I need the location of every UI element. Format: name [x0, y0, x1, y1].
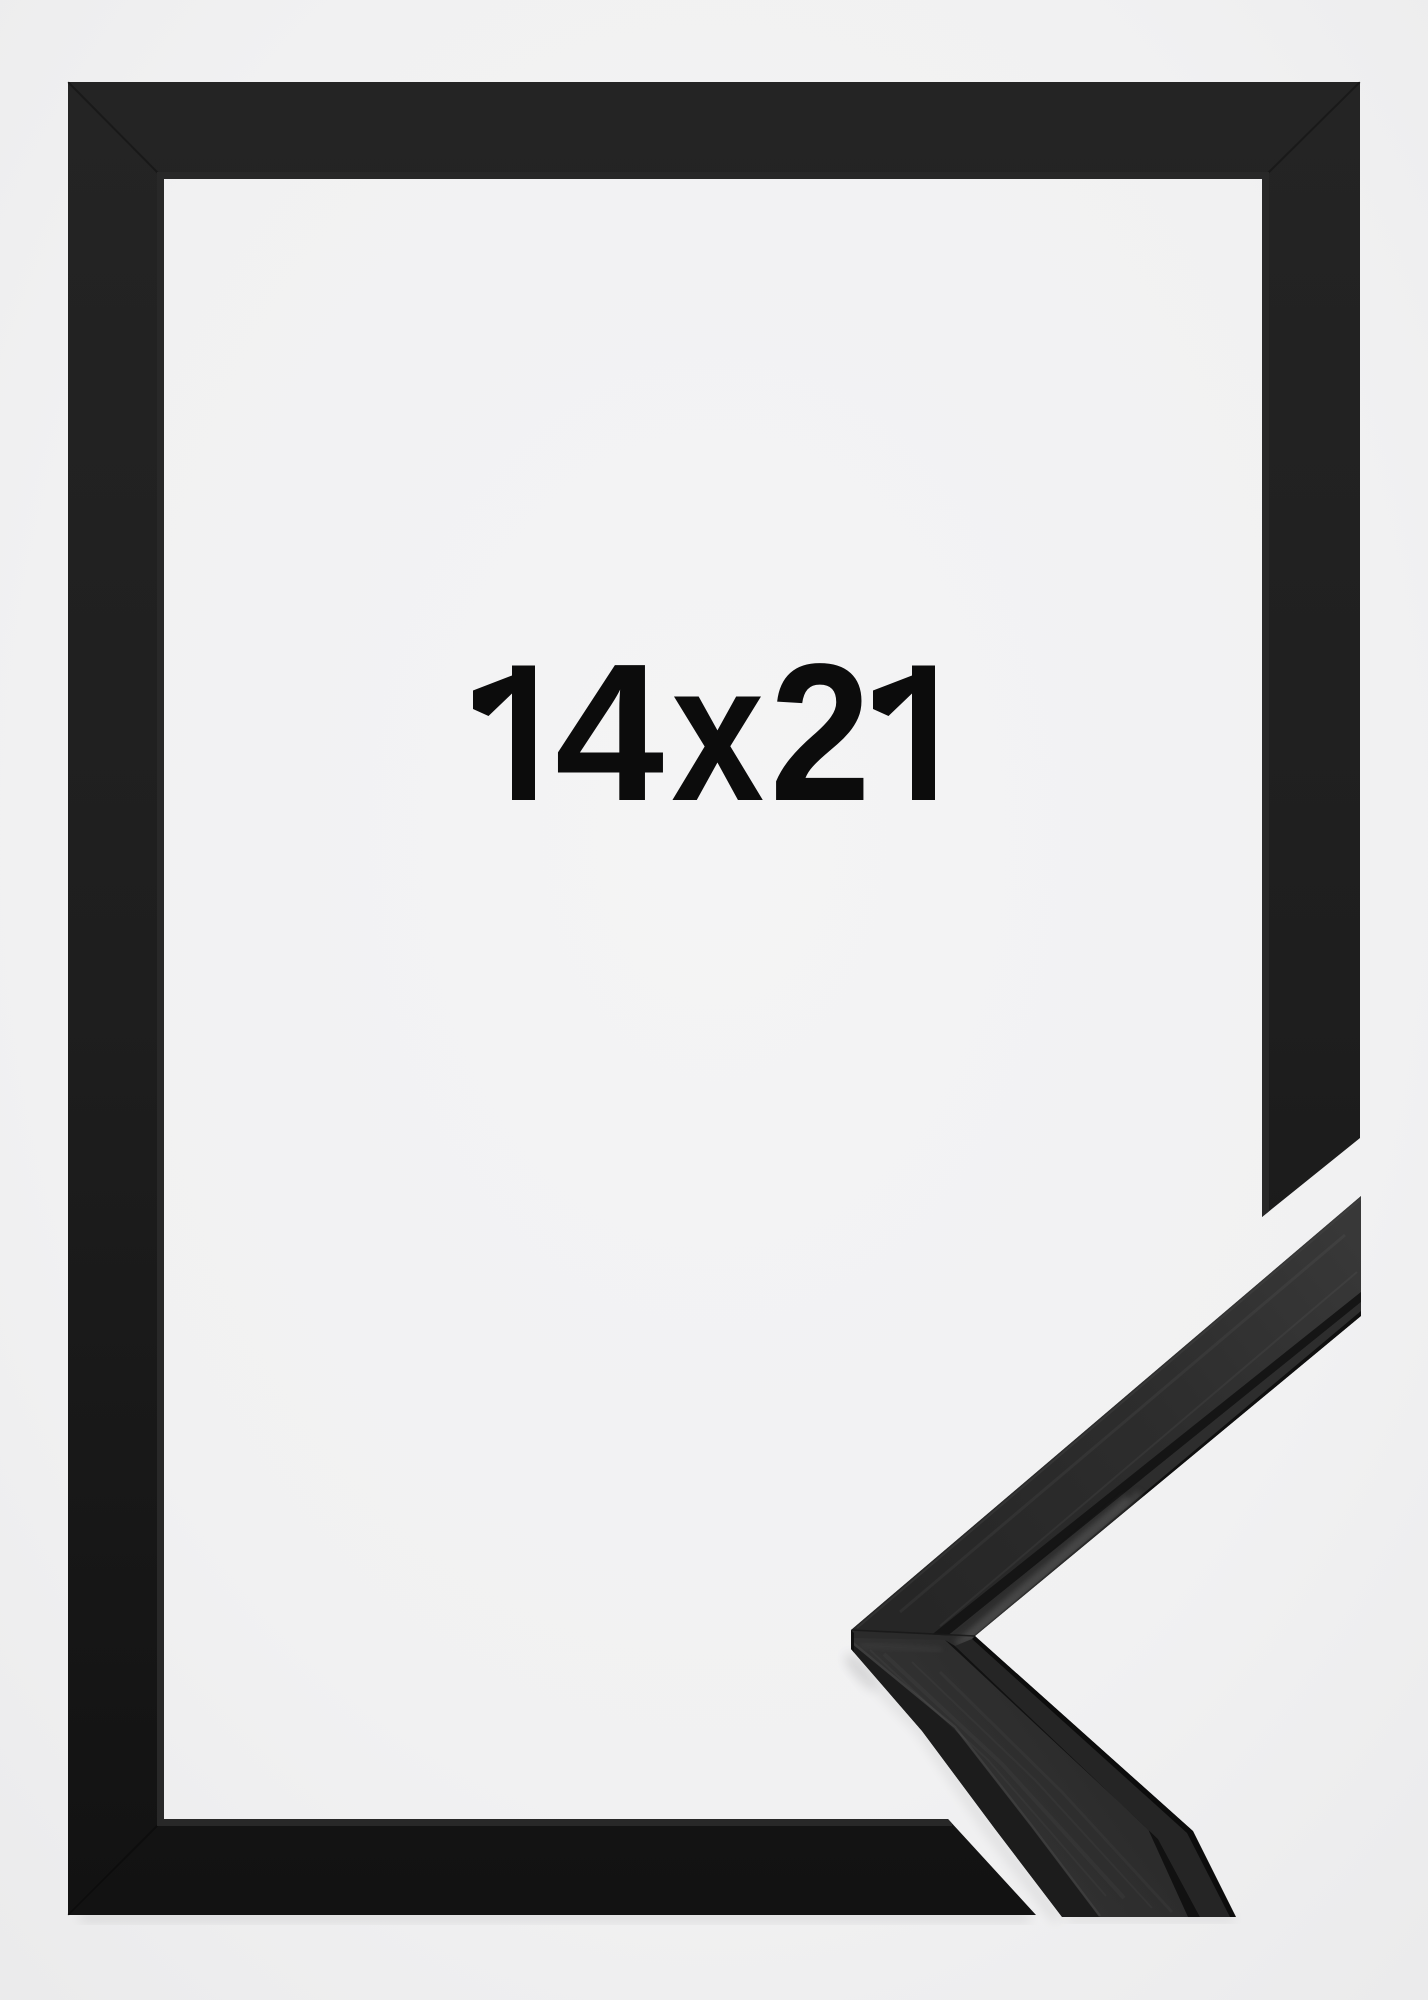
svg-text:x: x — [671, 623, 764, 842]
svg-text:4: 4 — [555, 623, 664, 842]
svg-text:2: 2 — [770, 623, 871, 842]
